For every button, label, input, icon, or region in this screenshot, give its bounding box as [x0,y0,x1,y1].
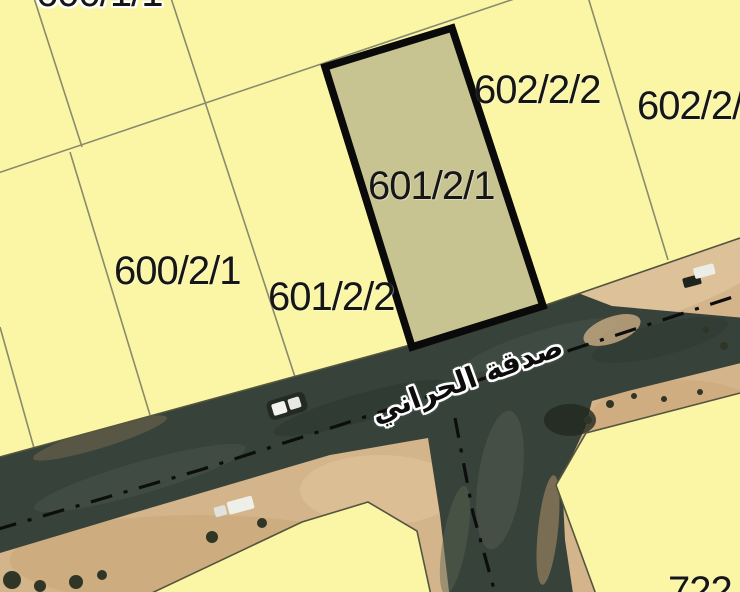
boundary-line-v5 [588,0,668,260]
boundary-line-v4 [0,327,34,448]
parcel-label-600-2-1: 600/2/1 [114,251,240,291]
boundary-line-v1 [33,0,82,147]
parcel-label-602-2-2: 602/2/2 [474,70,600,110]
parcel-label-602-2-partial: 602/2/ [637,86,740,126]
cadastral-map: 600/1/1 602/2/2 602/2/ 601/2/1 600/2/1 6… [0,0,740,592]
boundary-line-v2 [170,0,296,380]
parcel-label-600-1-1: 600/1/1 [36,0,162,13]
parcel-label-722: 722 [668,571,732,592]
parcel-label-601-2-2: 601/2/2 [268,277,394,317]
parcel-label-601-2-1: 601/2/1 [368,166,494,206]
